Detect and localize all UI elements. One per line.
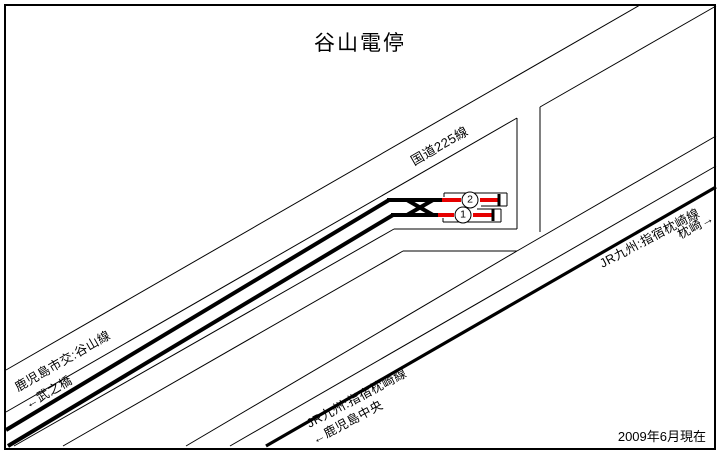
date-note: 2009年6月現在	[618, 426, 706, 445]
page-title: 谷山電停	[0, 27, 720, 57]
jr-corridor-north-edge	[230, 166, 716, 446]
platform-1-number-badge: 1	[455, 207, 472, 224]
road-lower-edge-west	[6, 118, 517, 412]
tram-track-north-diagonal	[6, 200, 389, 430]
diagram-canvas: 谷山電停 国道225線 鹿児島市交:谷山線 ←武之橋 JR九州:指宿枕崎線 枕崎…	[0, 0, 720, 454]
road-upper-edge	[6, 5, 640, 370]
